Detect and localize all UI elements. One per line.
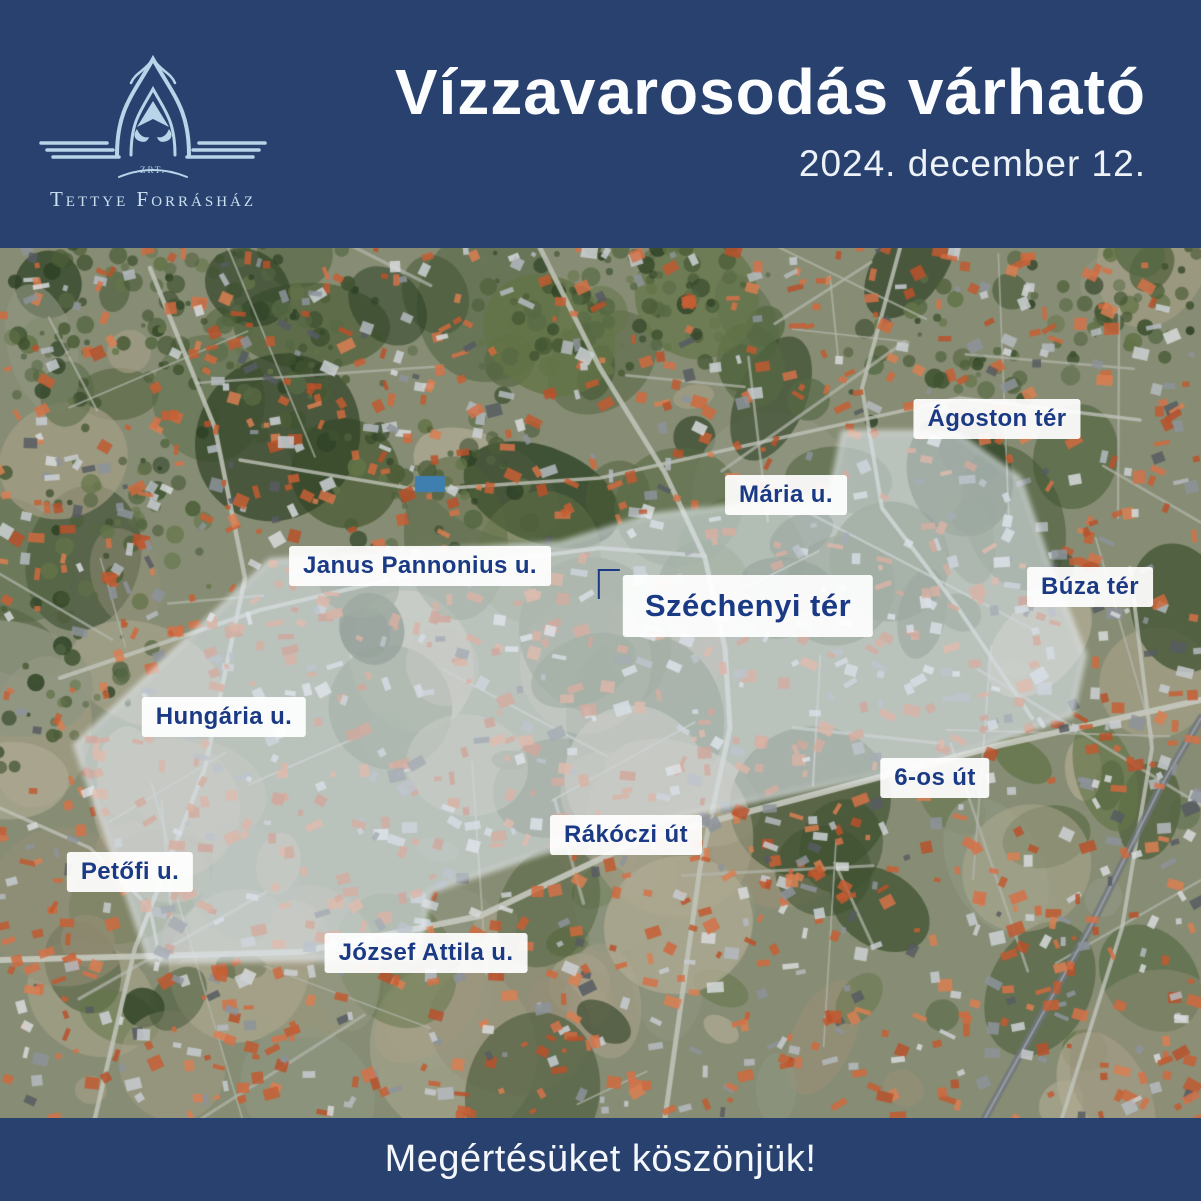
- notice-date: 2024. december 12.: [799, 143, 1146, 185]
- notice-poster: ZRT. Tettye Forrásház Vízzavarosodás vár…: [0, 0, 1201, 1201]
- map-label-janus-pannonius-u: Janus Pannonius u.: [289, 546, 551, 586]
- szechenyi-callout-bracket: [598, 569, 620, 599]
- map-label-rakoczi-ut: Rákóczi út: [550, 815, 702, 855]
- fountain-dome-icon: ZRT.: [33, 37, 273, 187]
- map-label-buza-ter: Búza tér: [1027, 567, 1153, 607]
- map-label-szechenyi-ter: Széchenyi tér: [623, 575, 873, 637]
- affected-area-overlay: [0, 248, 1201, 1118]
- map-label-maria-u: Mária u.: [725, 475, 847, 515]
- map-label-hungaria-u: Hungária u.: [142, 697, 306, 737]
- page-title: Vízzavarosodás várható: [395, 57, 1146, 127]
- header-text: Vízzavarosodás várható 2024. december 12…: [288, 57, 1201, 185]
- logo-company-suffix: ZRT.: [140, 165, 166, 175]
- header: ZRT. Tettye Forrásház Vízzavarosodás vár…: [0, 0, 1201, 248]
- footer: Megértésüket köszönjük!: [0, 1118, 1201, 1201]
- map-label-agoston-ter: Ágoston tér: [913, 399, 1080, 439]
- map-label-6-os-ut: 6-os út: [880, 758, 989, 798]
- map-section: Ágoston tér Mária u. Janus Pannonius u. …: [0, 248, 1201, 1118]
- map-label-petofi-u: Petőfi u.: [67, 852, 193, 892]
- szechenyi-label-text: Széchenyi tér: [645, 588, 851, 623]
- logo-company-name: Tettye Forrásház: [50, 187, 256, 212]
- map-label-jozsef-attila-u: József Attila u.: [325, 933, 528, 973]
- footer-message: Megértésüket köszönjük!: [385, 1138, 817, 1181]
- company-logo: ZRT. Tettye Forrásház: [18, 37, 288, 212]
